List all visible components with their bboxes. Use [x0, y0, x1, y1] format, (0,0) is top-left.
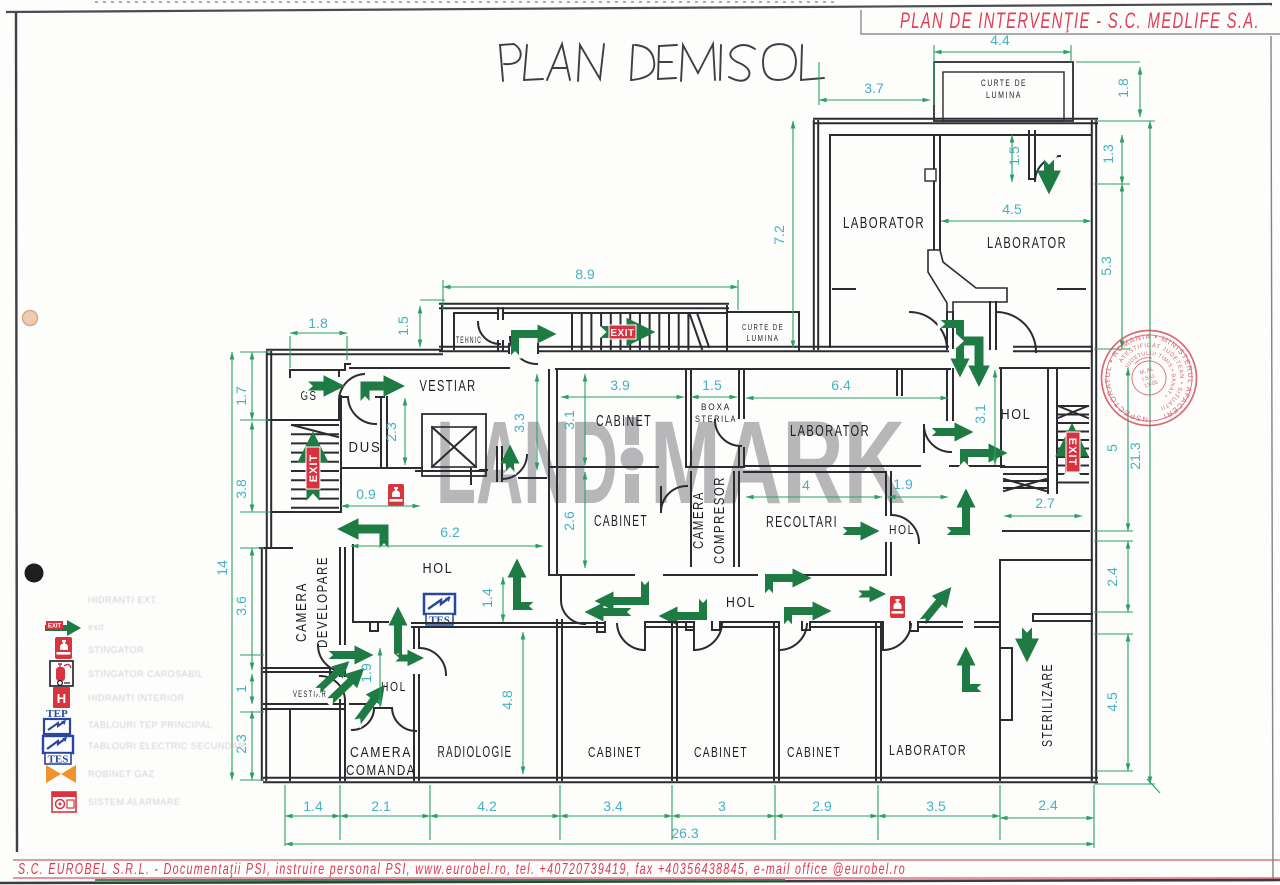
svg-text:2.9: 2.9	[812, 798, 832, 814]
svg-text:COMANDA: COMANDA	[346, 762, 416, 779]
svg-text:14: 14	[214, 560, 230, 576]
svg-text:1.9: 1.9	[893, 476, 913, 492]
svg-text:EXIT: EXIT	[308, 454, 320, 482]
svg-text:HIDRANTI EXT.: HIDRANTI EXT.	[88, 595, 159, 605]
svg-text:1.4: 1.4	[479, 588, 495, 608]
svg-text:0.9: 0.9	[356, 486, 376, 502]
svg-text:3.6: 3.6	[233, 596, 249, 616]
svg-text:6.4: 6.4	[831, 377, 851, 393]
svg-text:4.5: 4.5	[1002, 201, 1022, 217]
svg-text:HOL: HOL	[889, 522, 915, 537]
svg-text:3.7: 3.7	[864, 80, 884, 96]
svg-text:exit: exit	[88, 622, 104, 632]
svg-text:5: 5	[1104, 444, 1120, 452]
svg-text:8.9: 8.9	[575, 266, 595, 282]
svg-text:3.1: 3.1	[561, 410, 577, 430]
svg-text:1.4: 1.4	[303, 798, 323, 814]
svg-text:CABINET: CABINET	[694, 744, 748, 761]
svg-text:HOL: HOL	[381, 679, 407, 694]
svg-text:CABINET: CABINET	[787, 744, 841, 761]
svg-text:4.5: 4.5	[1104, 692, 1120, 712]
svg-text:CABINET: CABINET	[594, 513, 648, 530]
svg-text:HOL: HOL	[423, 560, 454, 577]
svg-text:4.4: 4.4	[990, 32, 1010, 48]
svg-text:2.3: 2.3	[383, 422, 399, 442]
svg-text:6.2: 6.2	[440, 524, 460, 540]
svg-text:MARK: MARK	[650, 397, 905, 529]
svg-text:TABLOURI ELECTRIC SECUNDAR: TABLOURI ELECTRIC SECUNDAR	[88, 741, 245, 751]
svg-text:26.3: 26.3	[671, 825, 698, 841]
svg-text:CURTE DE: CURTE DE	[981, 78, 1027, 88]
svg-text:21.3: 21.3	[1127, 442, 1143, 469]
svg-text:1.9: 1.9	[358, 663, 374, 683]
svg-text:EXIT: EXIT	[48, 624, 62, 630]
svg-text:RADIOLOGIE: RADIOLOGIE	[438, 744, 513, 761]
svg-text:CAMERA: CAMERA	[691, 491, 707, 549]
svg-text:COMPRESOR: COMPRESOR	[712, 476, 728, 564]
svg-text:LABORATOR: LABORATOR	[987, 235, 1067, 252]
svg-text:TABLOURI TEP PRINCIPAL: TABLOURI TEP PRINCIPAL	[88, 720, 212, 730]
svg-text:1.5: 1.5	[395, 316, 411, 336]
svg-text:3.4: 3.4	[603, 798, 623, 814]
svg-text:3.5: 3.5	[926, 798, 946, 814]
svg-text:HOL: HOL	[726, 594, 756, 611]
svg-text:TEHNIC: TEHNIC	[456, 335, 482, 346]
svg-text:2.7: 2.7	[1035, 495, 1055, 511]
svg-text:1.3: 1.3	[1100, 144, 1116, 164]
svg-text:DEVELOPARE: DEVELOPARE	[314, 556, 331, 648]
svg-text:TES: TES	[429, 615, 450, 627]
svg-text:4: 4	[802, 477, 810, 493]
svg-text:7.2: 7.2	[771, 225, 787, 245]
svg-text:1.5: 1.5	[702, 377, 722, 393]
svg-text:LABORATOR: LABORATOR	[790, 423, 870, 440]
svg-text:VESTIAR: VESTIAR	[420, 378, 477, 395]
svg-text:STINGATOR: STINGATOR	[88, 645, 144, 655]
svg-text:BOXA: BOXA	[701, 402, 731, 413]
svg-text:1.8: 1.8	[308, 315, 328, 331]
svg-text:3.1: 3.1	[972, 404, 988, 424]
svg-text:SISTEM ALARMARE: SISTEM ALARMARE	[88, 797, 181, 807]
svg-text:1.8: 1.8	[1115, 78, 1131, 98]
svg-text:LABORATOR: LABORATOR	[889, 742, 967, 759]
svg-text:CAMERA: CAMERA	[293, 582, 310, 642]
svg-text:LUMINA: LUMINA	[986, 90, 1022, 100]
svg-text:TES: TES	[48, 754, 69, 766]
svg-text:3.8: 3.8	[233, 479, 249, 499]
svg-text:3: 3	[718, 798, 726, 814]
svg-text:PLAN DE INTERVENŢIE - S.C. MED: PLAN DE INTERVENŢIE - S.C. MEDLIFE S.A.	[900, 8, 1260, 33]
svg-text:2.4: 2.4	[1104, 567, 1120, 587]
svg-text:EXIT: EXIT	[1066, 438, 1078, 466]
svg-text:5.3: 5.3	[1098, 256, 1114, 276]
svg-text:LUMINA: LUMINA	[747, 333, 780, 343]
svg-text:1.5: 1.5	[1006, 146, 1022, 166]
svg-text:CURTE DE: CURTE DE	[742, 322, 784, 332]
svg-text:3.9: 3.9	[610, 377, 630, 393]
svg-text:STINGATOR CAROSABIL: STINGATOR CAROSABIL	[88, 669, 203, 679]
svg-text:CABINET: CABINET	[596, 413, 652, 430]
svg-text:3.3: 3.3	[511, 413, 527, 433]
svg-text:CABINET: CABINET	[588, 744, 642, 761]
svg-text:STERILIZARE: STERILIZARE	[1039, 663, 1056, 747]
svg-text:S.C. EUROBEL S.R.L. - Document: S.C. EUROBEL S.R.L. - Documentaţii PSI, …	[18, 861, 906, 878]
svg-text:4.8: 4.8	[499, 690, 515, 710]
svg-text:ROBINET GAZ: ROBINET GAZ	[88, 769, 154, 779]
svg-text:HIDRANTI INTERIOR: HIDRANTI INTERIOR	[88, 693, 185, 703]
svg-text:4.2: 4.2	[477, 798, 497, 814]
svg-text:CAMERA: CAMERA	[350, 744, 412, 761]
svg-text:LAND: LAND	[436, 397, 618, 529]
svg-text:LABORATOR: LABORATOR	[843, 215, 925, 232]
svg-text:HOL: HOL	[1001, 406, 1032, 423]
svg-text:2.4: 2.4	[1038, 797, 1058, 813]
svg-text:1: 1	[233, 685, 249, 693]
svg-text:RECOLTARI: RECOLTARI	[766, 514, 838, 531]
svg-text:EXIT: EXIT	[610, 328, 634, 339]
svg-text:1.7: 1.7	[233, 386, 249, 406]
svg-text:2.6: 2.6	[561, 511, 577, 531]
svg-text:2.1: 2.1	[371, 798, 391, 814]
svg-text:H: H	[57, 691, 66, 706]
svg-text:DUS: DUS	[349, 439, 382, 456]
